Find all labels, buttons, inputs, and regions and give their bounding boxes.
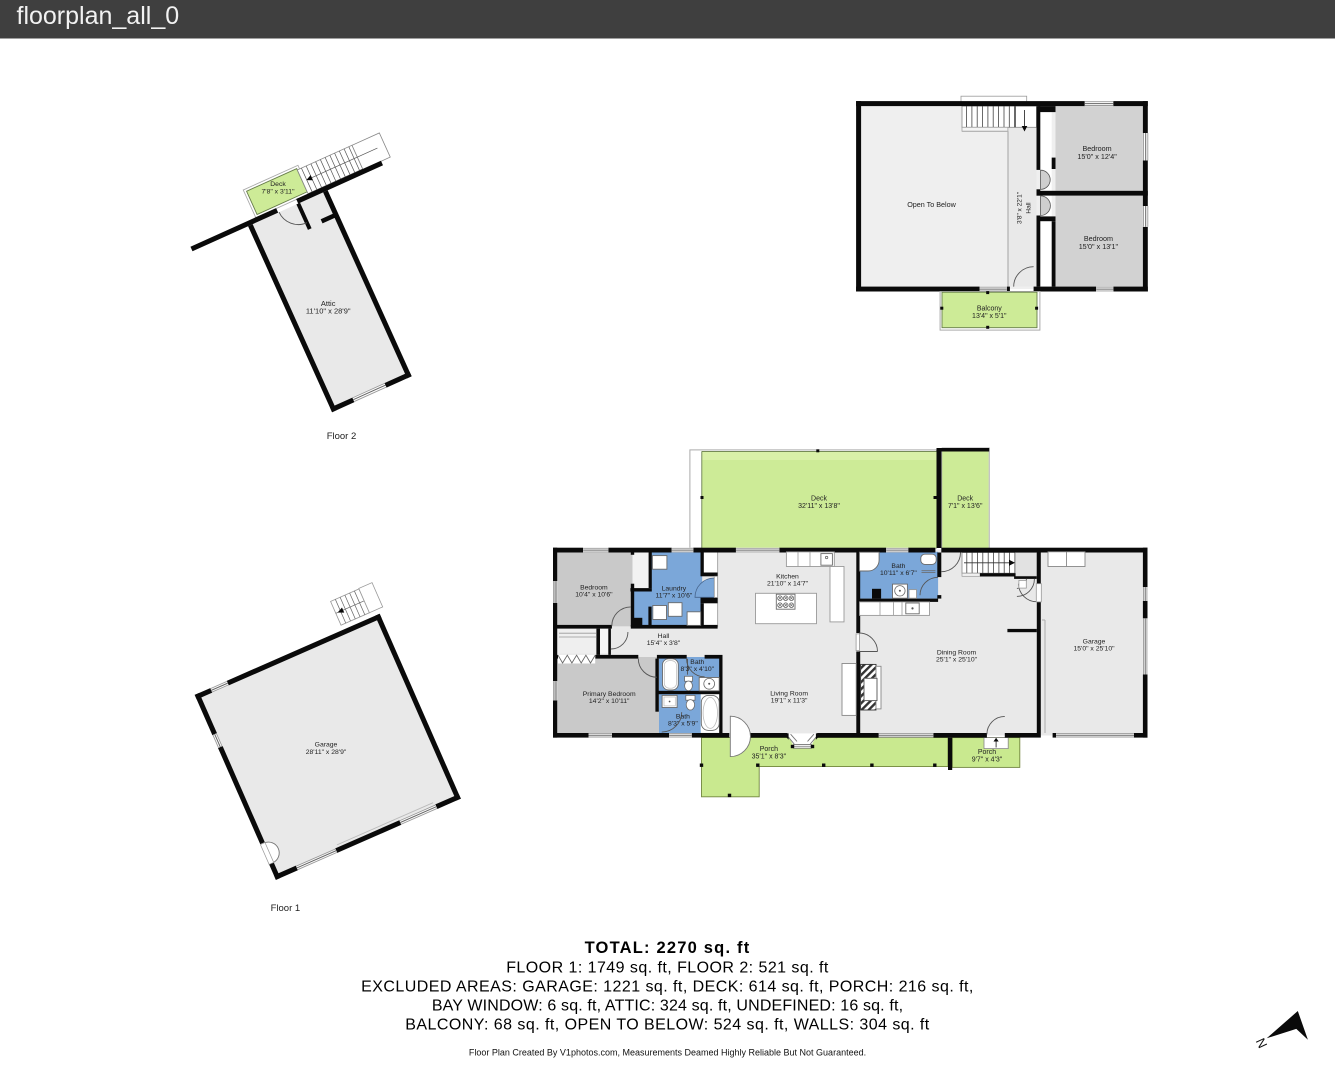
svg-text:Open To Below: Open To Below (907, 200, 956, 209)
svg-text:7'8" x 3'11": 7'8" x 3'11" (262, 188, 296, 195)
svg-text:21'10" x 14'7": 21'10" x 14'7" (767, 581, 809, 588)
svg-text:10'4" x 10'6": 10'4" x 10'6" (575, 592, 613, 599)
svg-text:10'11" x 6'7": 10'11" x 6'7" (880, 570, 917, 577)
svg-text:Bath: Bath (891, 563, 905, 570)
svg-text:FLOOR 1: 1749 sq. ft, FLOOR 2:: FLOOR 1: 1749 sq. ft, FLOOR 2: 521 sq. f… (506, 960, 829, 977)
svg-text:8'3" x 4'10": 8'3" x 4'10" (681, 666, 715, 673)
svg-text:32'11" x 13'8": 32'11" x 13'8" (798, 503, 840, 510)
svg-text:Balcony: Balcony (977, 306, 1002, 313)
svg-text:11'7" x 10'6": 11'7" x 10'6" (656, 593, 693, 600)
svg-text:Porch: Porch (760, 746, 778, 753)
svg-text:Floor Plan Created By V1photos: Floor Plan Created By V1photos.com, Meas… (469, 1048, 866, 1058)
svg-text:Garage: Garage (315, 741, 338, 748)
svg-text:Floor 2: Floor 2 (327, 431, 357, 442)
svg-text:floorplan_all_0: floorplan_all_0 (17, 2, 180, 30)
svg-text:Deck: Deck (957, 495, 973, 502)
svg-text:Garage: Garage (1083, 638, 1106, 645)
svg-text:35'1" x 8'3": 35'1" x 8'3" (752, 753, 787, 760)
svg-text:Bedroom: Bedroom (580, 584, 608, 591)
svg-text:Floor 1: Floor 1 (271, 903, 301, 914)
svg-text:Living Room: Living Room (770, 690, 808, 697)
svg-text:15'0" x 13'1": 15'0" x 13'1" (1079, 242, 1119, 251)
svg-text:3'8" x 22'1": 3'8" x 22'1" (1017, 191, 1024, 224)
svg-text:Kitchen: Kitchen (776, 573, 799, 580)
svg-text:28'11" x 28'9": 28'11" x 28'9" (306, 749, 347, 756)
svg-text:11'10" x 28'9": 11'10" x 28'9" (306, 307, 351, 316)
svg-text:15'0" x 12'4": 15'0" x 12'4" (1077, 152, 1117, 161)
svg-text:8'3" x 5'9": 8'3" x 5'9" (668, 721, 698, 728)
svg-text:BALCONY: 68 sq. ft, OPEN TO BE: BALCONY: 68 sq. ft, OPEN TO BELOW: 524 s… (405, 1016, 930, 1033)
svg-text:15'4" x 3'8": 15'4" x 3'8" (647, 640, 681, 647)
svg-text:Dining Room: Dining Room (937, 650, 977, 657)
svg-text:Hall: Hall (658, 633, 670, 640)
svg-text:15'0" x 25'10": 15'0" x 25'10" (1073, 646, 1115, 653)
svg-text:BAY WINDOW: 6 sq. ft, ATTIC: 3: BAY WINDOW: 6 sq. ft, ATTIC: 324 sq. ft,… (432, 997, 903, 1014)
svg-text:TOTAL: 2270 sq. ft: TOTAL: 2270 sq. ft (585, 939, 751, 957)
svg-text:9'7" x 4'3": 9'7" x 4'3" (972, 756, 1003, 763)
svg-text:Porch: Porch (978, 749, 996, 756)
svg-text:7'1" x 13'6": 7'1" x 13'6" (948, 503, 983, 510)
svg-text:N: N (1253, 1036, 1271, 1051)
svg-text:Primary Bedroom: Primary Bedroom (583, 691, 636, 698)
svg-text:13'4" x 5'1": 13'4" x 5'1" (972, 313, 1007, 320)
svg-text:EXCLUDED AREAS: GARAGE: 1221 s: EXCLUDED AREAS: GARAGE: 1221 sq. ft, DEC… (361, 978, 974, 995)
svg-text:14'2" x 10'11": 14'2" x 10'11" (589, 698, 630, 705)
svg-text:Deck: Deck (270, 181, 286, 188)
svg-text:19'1" x 11'3": 19'1" x 11'3" (771, 698, 808, 705)
svg-text:Laundry: Laundry (662, 585, 687, 592)
svg-text:25'1" x 25'10": 25'1" x 25'10" (936, 657, 978, 664)
svg-text:Bath: Bath (690, 659, 704, 666)
svg-text:Deck: Deck (811, 495, 827, 502)
svg-text:Hall: Hall (1026, 202, 1033, 214)
svg-text:Bath: Bath (676, 713, 690, 720)
